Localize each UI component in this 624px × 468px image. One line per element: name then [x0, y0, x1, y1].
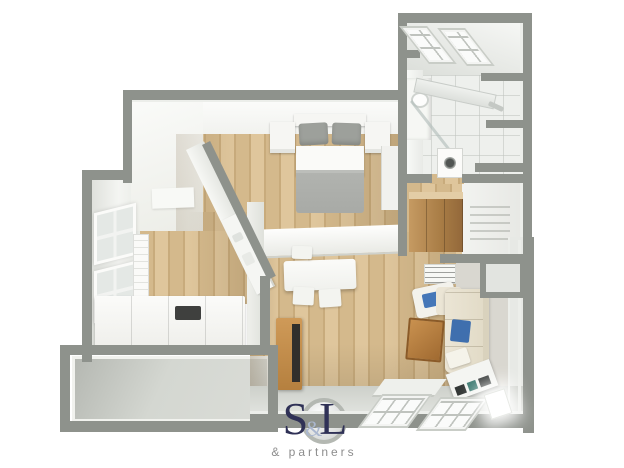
study-daybed — [95, 296, 245, 348]
bathroom-south-wall-right — [462, 174, 523, 183]
brand-letter-l: L — [319, 393, 345, 444]
washing-machine — [437, 148, 463, 178]
bedroom-south-wall-face — [258, 224, 407, 258]
bed-pillow-right — [332, 123, 362, 146]
bedroom-bathroom-divider — [398, 90, 407, 256]
hall-cabinet — [152, 187, 195, 208]
living-west-wall — [260, 276, 270, 348]
daybed-tray — [175, 306, 201, 320]
study-window-1 — [94, 203, 136, 265]
bath-niche-stub-3 — [475, 163, 532, 172]
hall-floor-white — [131, 100, 203, 231]
watermark-logo: S&L & partners — [252, 396, 376, 459]
balcony-floor — [72, 356, 270, 422]
brand-ampersand: & — [305, 416, 320, 441]
bath-niche-stub-2 — [486, 120, 532, 128]
counter-item-sink — [232, 231, 244, 243]
sofa-blue-pillow — [450, 319, 471, 343]
bathroom-south-wall-left — [407, 174, 432, 183]
sideboard-module-dark2 — [478, 375, 491, 387]
bed-blanket — [296, 170, 364, 213]
floor-plan-render: S&L & partners — [0, 0, 624, 468]
brand-wordmark: S&L — [252, 396, 376, 442]
closet-radiator — [470, 206, 510, 240]
coffee-table — [405, 318, 445, 363]
sideboard-module-teal — [467, 380, 479, 392]
balcony-north-wall — [60, 345, 278, 355]
bed-pillow-left — [298, 122, 328, 145]
balcony-west-wall — [60, 345, 70, 432]
tv-cabinet — [276, 318, 302, 390]
east-niche — [480, 258, 526, 298]
closet-wood-wardrobe — [409, 192, 463, 252]
washing-machine-door — [444, 157, 456, 169]
bath-niche-stub-1 — [481, 73, 532, 81]
closet-living-wall — [440, 254, 523, 263]
brand-letter-s: S — [283, 393, 307, 444]
bathroom-north-wall — [398, 13, 532, 23]
study-radiator-shelf — [133, 234, 149, 304]
bedroom-inner-trim — [132, 100, 398, 102]
dining-chair-left — [293, 286, 315, 305]
bedroom-north-wall — [123, 90, 407, 100]
bathroom-wall-stub — [398, 50, 420, 58]
tv-screen — [292, 324, 300, 382]
study-north-wall — [82, 170, 127, 180]
study-west-wall — [82, 170, 92, 362]
counter-item-cooktop — [241, 251, 255, 266]
dining-chair-top — [292, 246, 312, 260]
sideboard-module-dark — [454, 384, 466, 396]
nightstand-left — [270, 122, 295, 153]
brand-tagline: & partners — [252, 445, 376, 459]
balcony-south-wall — [60, 421, 278, 432]
dining-chair-right — [318, 288, 341, 307]
